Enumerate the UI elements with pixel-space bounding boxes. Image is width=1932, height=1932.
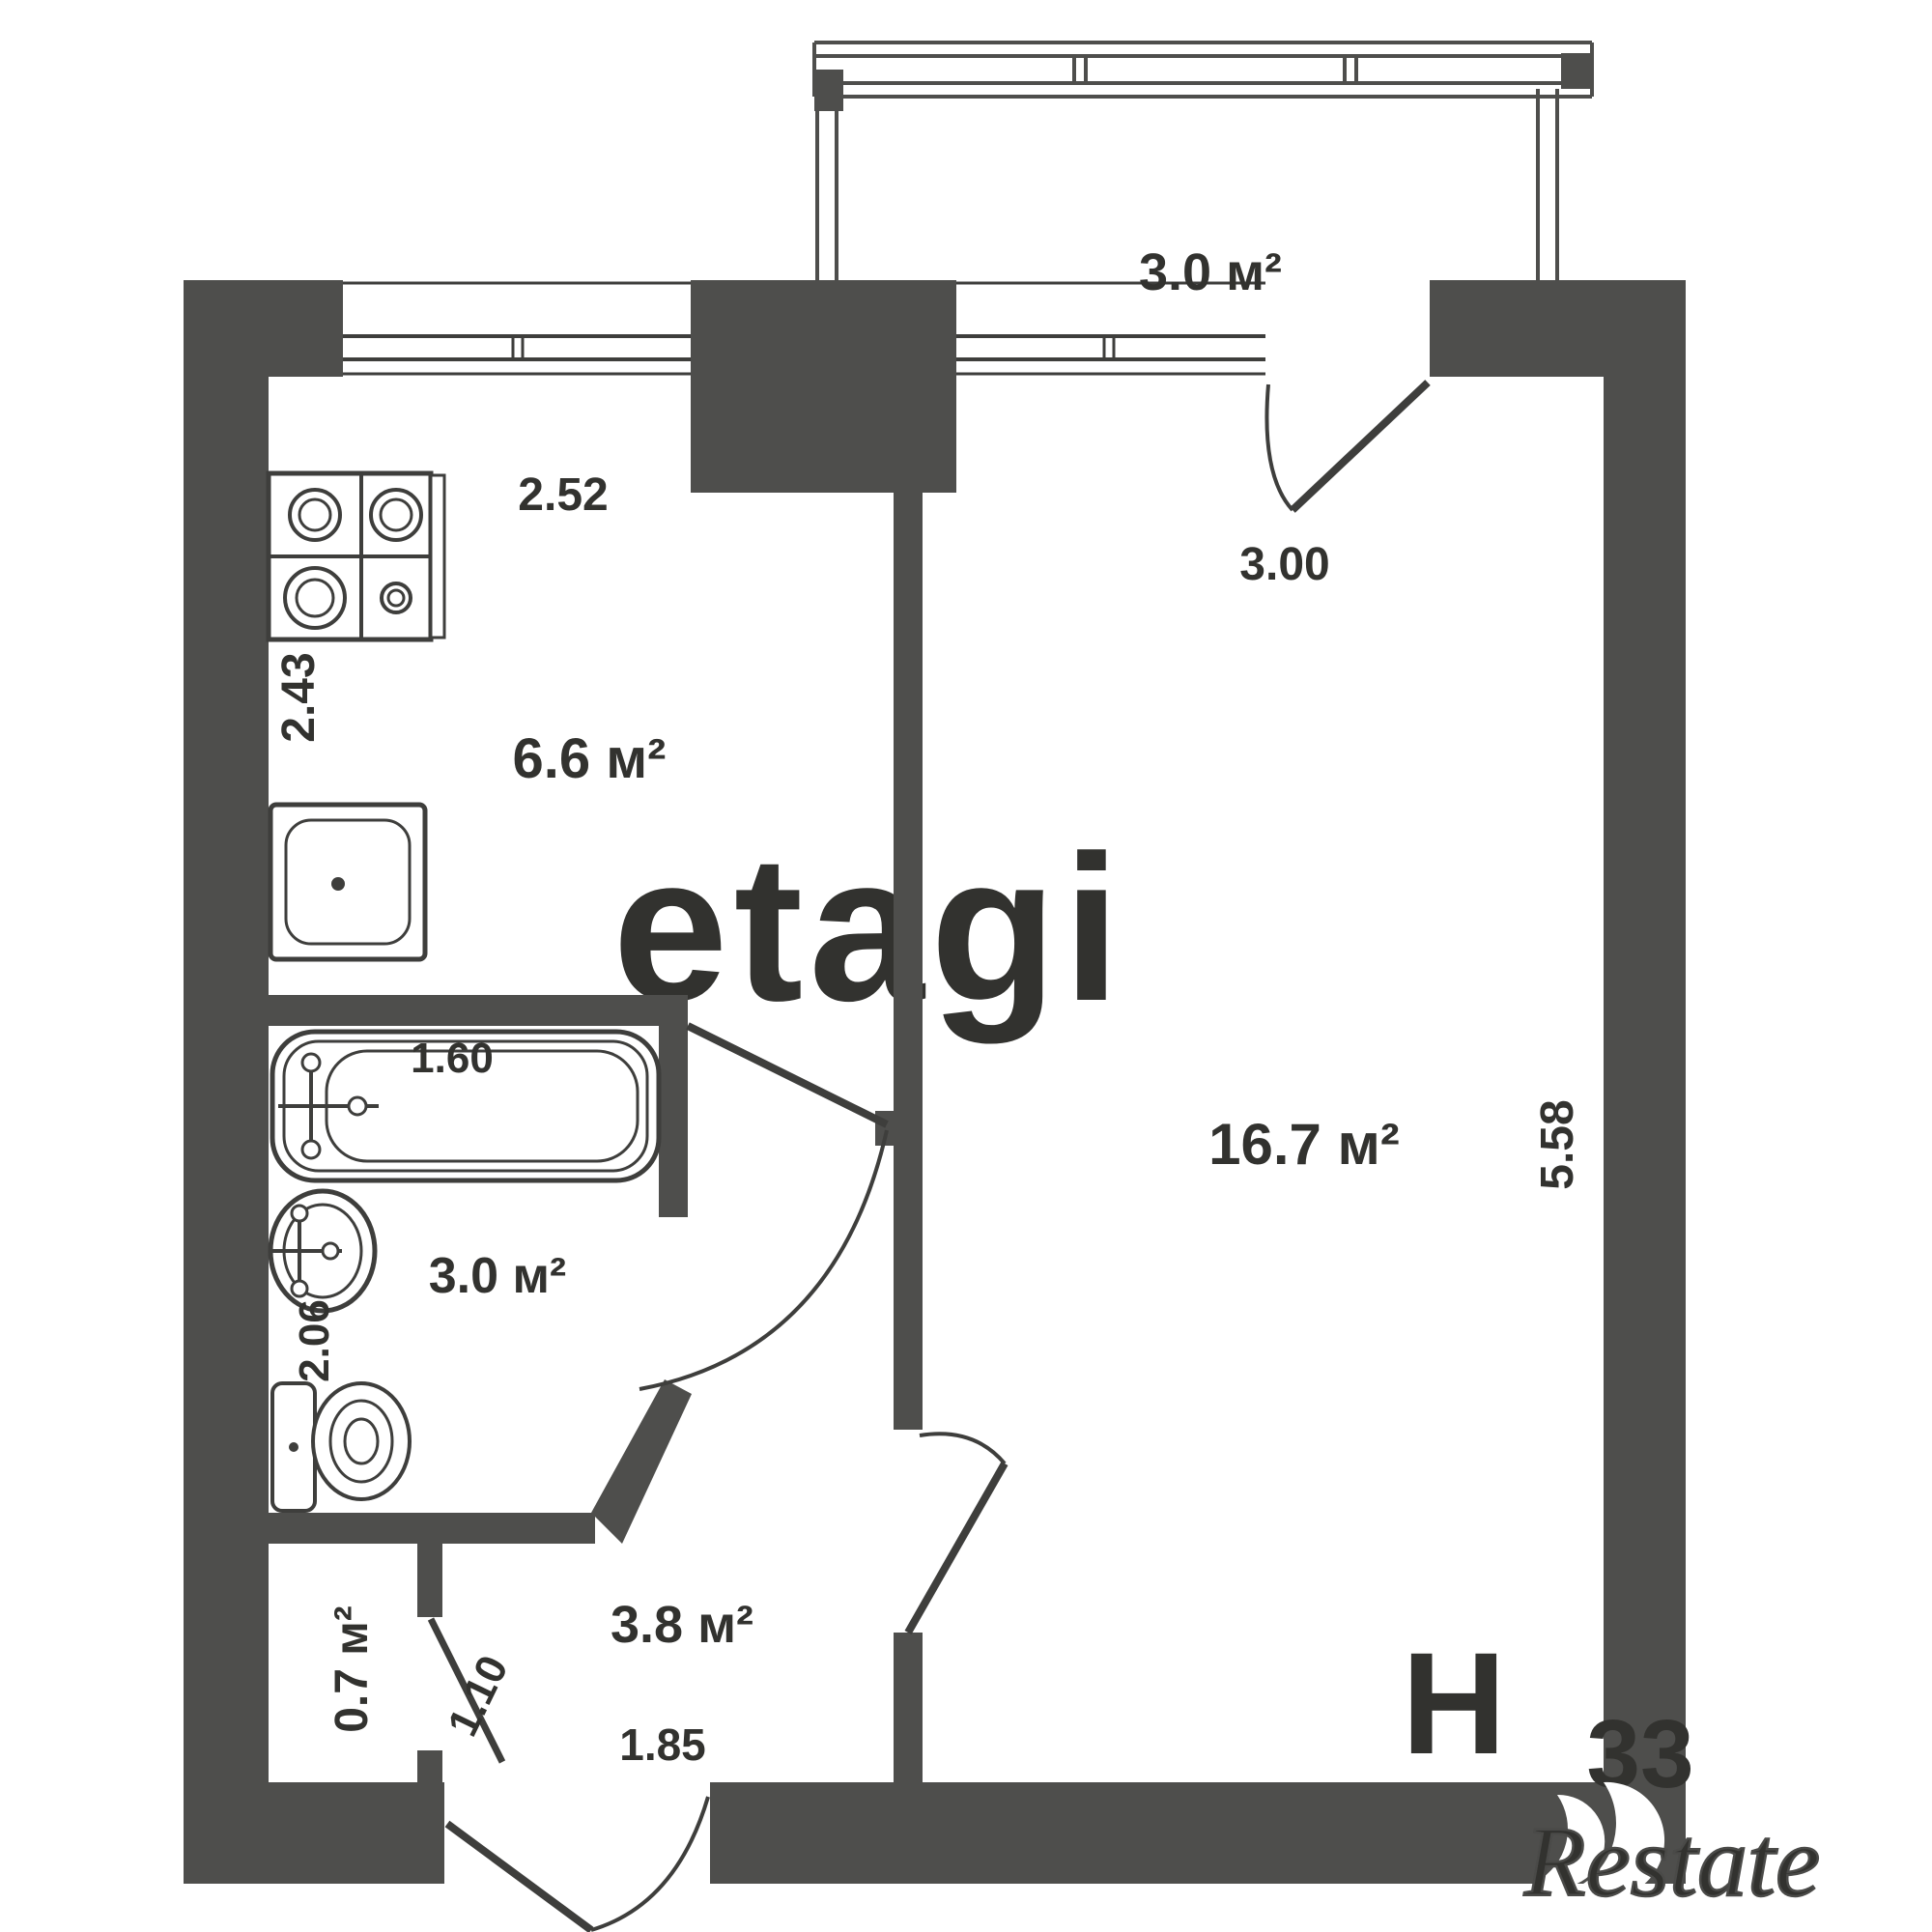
living-room-area-label: 16.7 м² [1208,1112,1400,1177]
wall-bathroom-angled [591,1379,692,1544]
living-depth-dim: 5.58 [1532,1099,1583,1189]
hallway-width-dim: 1.85 [619,1719,706,1770]
balcony-glazing-dividers [1074,56,1356,83]
watermark-corner-number: 33 [1586,1700,1693,1808]
living-width-dim: 3.00 [1239,539,1329,590]
toilet-icon [272,1383,410,1511]
bathroom-area-label: 3.0 м² [429,1248,567,1304]
balcony-post-right [1561,53,1592,89]
bathroom-depth-dim: 2.06 [291,1299,338,1382]
floorplan-page: etagi Н [0,0,1932,1932]
kitchen-sink-icon [270,805,425,959]
kitchen-width-dim: 2.52 [518,469,608,521]
kitchen-area-label: 6.6 м² [513,727,667,790]
wall-closet-stub-bottom [417,1750,442,1782]
wall-closet-stub-top [417,1544,442,1617]
bathtub-length-dim: 1.60 [411,1035,494,1082]
wall-bathroom-right [659,1026,688,1217]
kitchen-depth-dim: 2.43 [273,652,325,742]
living-room-door [908,1434,1005,1633]
balcony-post-left [814,70,843,111]
hallway-area-label: 3.8 м² [611,1596,753,1654]
wall-top-pier [691,280,956,493]
wall-divider-lower [894,1633,923,1782]
balcony-glazing-left [817,111,837,280]
kitchen-window [343,283,691,374]
stove-icon [269,473,444,639]
wall-bathroom-top [269,995,688,1026]
closet-area-label: 0.7 м² [327,1605,378,1733]
watermark-corner-letter: Н [1402,1622,1506,1784]
balcony-glazing-right [1538,89,1557,280]
watermark-etagi: etagi [612,811,1126,1044]
balcony-area-label: 3.0 м² [1139,243,1282,301]
entrance-door [447,1797,708,1930]
balcony-door [1266,383,1428,510]
logo-layer: 33 Restate [1523,1700,1820,1918]
wall-divider-upper [894,493,923,1430]
logo-restate: Restate [1523,1806,1820,1918]
wall-right [1604,280,1686,1884]
wall-bathroom-bottom [269,1513,595,1544]
wall-bottom-left [184,1782,444,1884]
bathroom-sink-icon [270,1191,375,1311]
wall-left [184,280,269,1884]
floorplan-drawing: etagi Н [0,0,1932,1932]
